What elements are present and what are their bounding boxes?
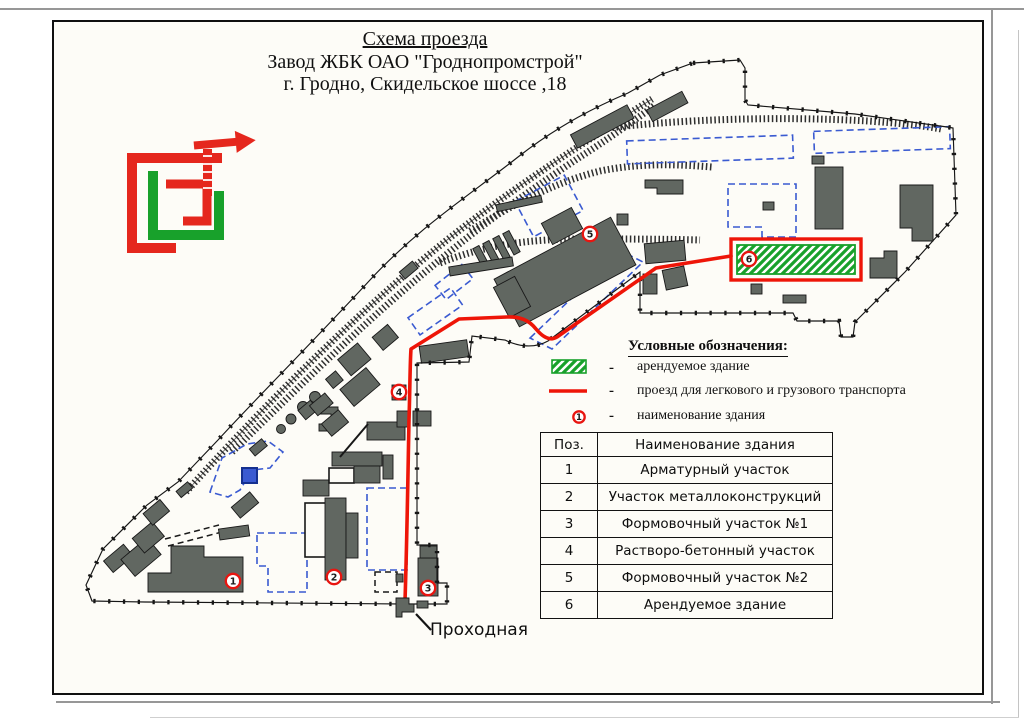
svg-text:1: 1 <box>576 413 582 423</box>
gate-label: Проходная <box>430 620 528 640</box>
legend-dash-1: - <box>609 360 614 377</box>
svg-text:1: 1 <box>230 576 237 587</box>
building-under-route <box>419 340 469 364</box>
building-marker-4: 4 <box>392 385 406 399</box>
building-marker-5: 5 <box>583 227 597 241</box>
grodnopromstroy-logo <box>132 129 257 248</box>
building-marker-1: 1 <box>226 574 240 588</box>
table-row: 3Формовочный участок №1 <box>541 511 833 538</box>
building-name-header: Наименование здания <box>598 433 833 457</box>
building-table-body: 1Арматурный участок2Участок металлоконст… <box>541 457 833 619</box>
position-cell: 3 <box>541 511 598 538</box>
open-gallery <box>165 525 222 546</box>
dashed-shed <box>375 572 397 592</box>
building-name-cell: Участок металлоконструкций <box>598 484 833 511</box>
position-cell: 5 <box>541 565 598 592</box>
position-cell: 6 <box>541 592 598 619</box>
svg-text:5: 5 <box>587 229 594 240</box>
building-marker-2: 2 <box>327 570 341 584</box>
table-row: 5Формовочный участок №2 <box>541 565 833 592</box>
building-marker-6: 6 <box>742 252 756 266</box>
gate-pointer-line <box>416 614 431 630</box>
building-name-cell: Формовочный участок №2 <box>598 565 833 592</box>
position-cell: 2 <box>541 484 598 511</box>
table-row: 4Растворо-бетонный участок <box>541 538 833 565</box>
building-name-cell: Арматурный участок <box>598 457 833 484</box>
building-marker-3: 3 <box>421 581 435 595</box>
table-row: 2Участок металлоконструкций <box>541 484 833 511</box>
logo-crane-mast <box>203 149 212 196</box>
logo-arrow <box>193 129 257 156</box>
legend-symbols: 1 <box>549 360 587 423</box>
svg-text:3: 3 <box>425 583 432 594</box>
table-row: 6Арендуемое здание <box>541 592 833 619</box>
legend-dash-3: - <box>609 408 614 425</box>
building-name-cell: Арендуемое здание <box>598 592 833 619</box>
rail-wagon <box>399 261 418 279</box>
legend-item-building-name: наименование здания <box>637 408 765 424</box>
site-plan: 1 2 3 4 5 6 1 <box>0 0 1024 724</box>
legend-item-rented-building: арендуемое здание <box>637 359 750 375</box>
blue-building <box>242 468 257 483</box>
tall-building <box>815 167 843 229</box>
scanned-route-scheme: Схема проезда Завод ЖБК ОАО "Гроднопромс… <box>0 0 1024 724</box>
position-cell: 1 <box>541 457 598 484</box>
svg-text:6: 6 <box>746 254 753 265</box>
legend-item-route: проезд для легкового и грузового транспо… <box>637 383 906 399</box>
building-2 <box>325 498 346 580</box>
rented-building-swatch <box>552 360 586 373</box>
table-row: 1Арматурный участок <box>541 457 833 484</box>
building-name-cell: Формовочный участок №1 <box>598 511 833 538</box>
factory-buildings <box>104 324 469 596</box>
legend-heading: Условные обозначения: <box>628 338 788 357</box>
gate-building <box>396 598 431 630</box>
position-cell: 4 <box>541 538 598 565</box>
svg-text:4: 4 <box>396 387 403 398</box>
forming-area-complex <box>449 180 688 327</box>
table-header-row: Поз. Наименование здания <box>541 433 833 457</box>
building-table: Поз. Наименование здания 1Арматурный уча… <box>540 432 833 619</box>
svg-text:2: 2 <box>331 572 338 583</box>
courtyard-building <box>305 503 327 557</box>
position-header: Поз. <box>541 433 598 457</box>
legend-dash-2: - <box>609 383 614 400</box>
legend-number-marker: 1 <box>573 411 584 423</box>
building-name-cell: Растворо-бетонный участок <box>598 538 833 565</box>
